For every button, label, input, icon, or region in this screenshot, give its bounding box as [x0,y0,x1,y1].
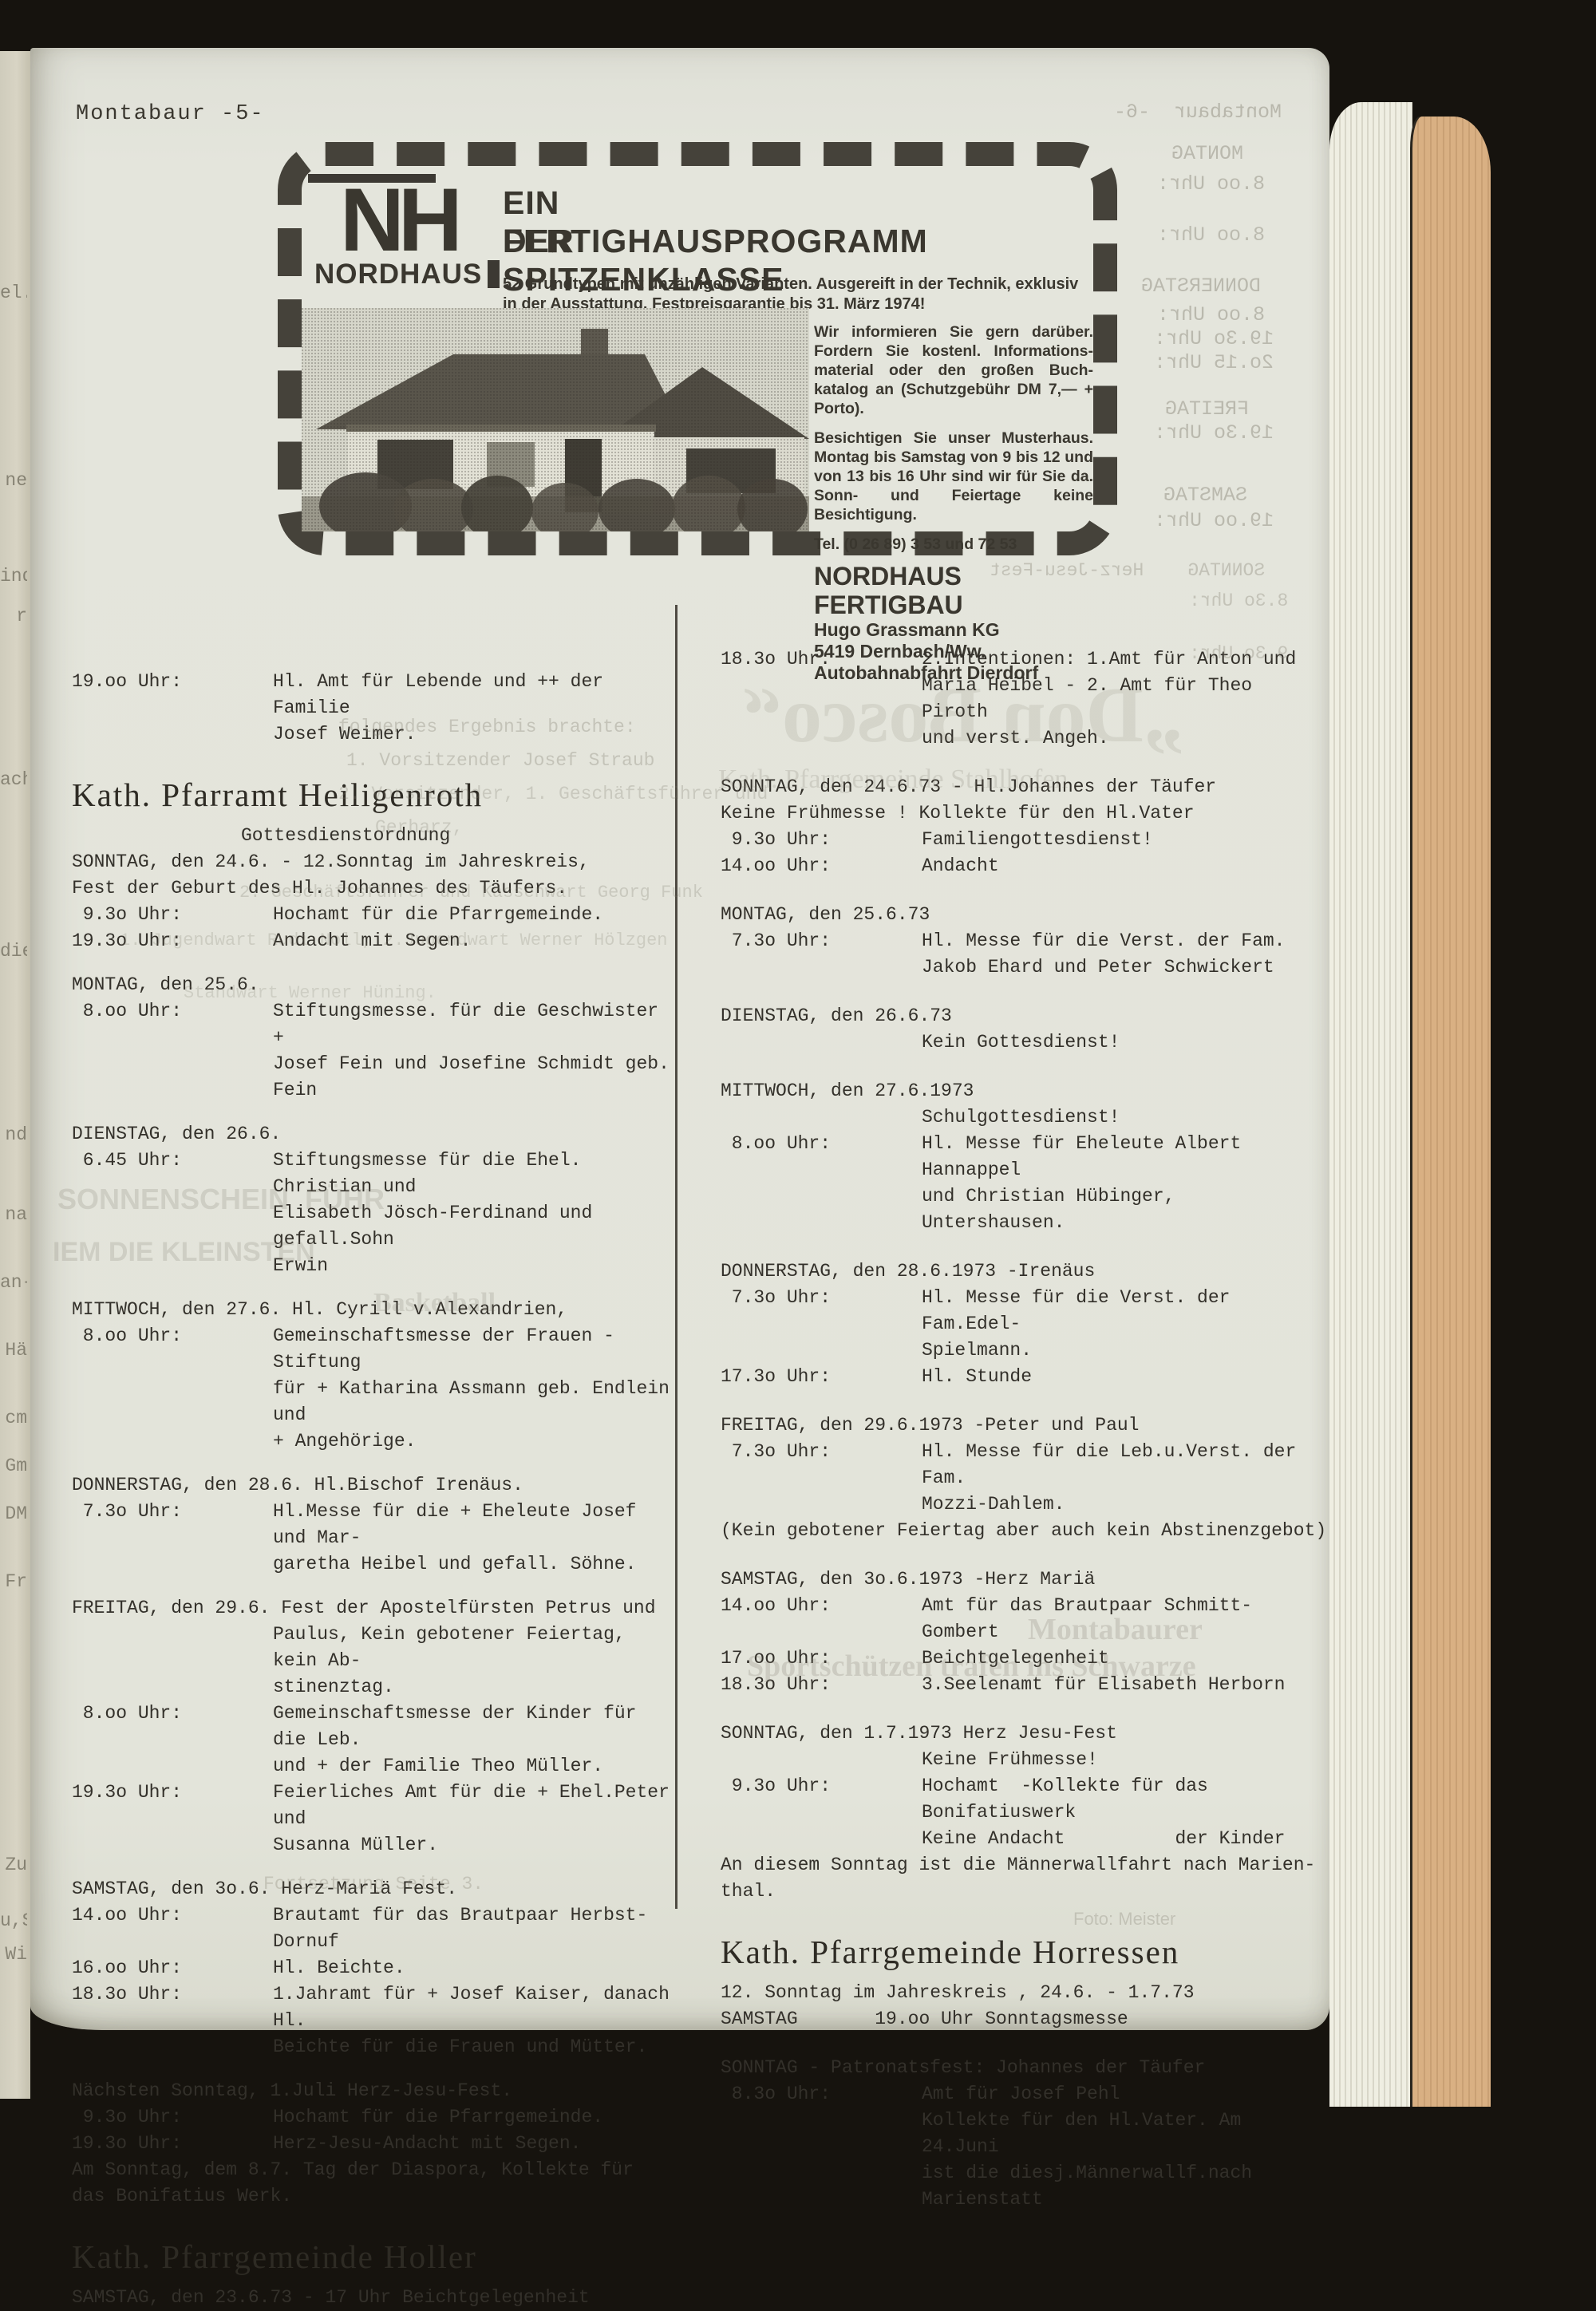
time-cell [72,1753,273,1780]
schedule-day-line: An diesem Sonntag ist die Männerwallfahr… [721,1852,1327,1878]
edge-text-fragment: na [0,1204,27,1225]
schedule-time-row: 7.3o Uhr:Hl. Messe für die Verst. der Fa… [721,1285,1327,1337]
schedule-time-row: 9.3o Uhr:Hochamt für die Pfarrgemeinde. [72,2104,680,2131]
time-cell: 19.3o Uhr: [72,2131,273,2157]
schedule-continuation-row: Kollekte für den Hl.Vater. Am 24.Juni [721,2108,1327,2160]
schedule-continuation-row: Kein Gottesdienst! [721,1029,1327,1056]
bleedthrough-text: 2o.15 Uhr: [1154,351,1274,374]
time-cell [721,1747,922,1773]
text-cell: Hochamt für die Pfarrgemeinde. [273,2104,680,2131]
time-cell: 16.oo Uhr: [72,1955,273,1981]
schedule-continuation-row: und Christian Hübinger, Untershausen. [721,1183,1327,1236]
text-cell: Erwin [273,1253,680,1279]
bleedthrough-text: 9.3o Uhr: [1189,643,1288,664]
spacer [721,1698,1327,1720]
spacer [721,879,1327,902]
ad-info-paragraph-1: Wir informieren Sie gern darüber. Forder… [814,322,1093,418]
bleedthrough-text: 19.oo Uhr: [1154,509,1274,532]
text-cell: Hl. Messe für Eheleute Albert Hannappel [922,1131,1327,1183]
bleedthrough-text: IEM DIE KLEINSTEN [53,1237,315,1268]
edge-text-fragment: Fr [0,1571,27,1592]
text-cell: Susanna Müller. [273,1832,680,1859]
bleedthrough-text: Standwart Werner Hüning. [184,983,437,1003]
bleedthrough-text: Gerharz, [375,817,463,838]
text-cell: Spielmann. [922,1337,1327,1364]
edge-text-fragment: el. [0,282,27,303]
time-cell: 8.3o Uhr: [721,2081,922,2108]
schedule-day-line: DONNERSTAG, den 28.6. Hl.Bischof Irenäus… [72,1472,680,1499]
ad-info-block: Wir informieren Sie gern darüber. Forder… [814,322,1093,684]
schedule-day-line: 12. Sonntag im Jahreskreis , 24.6. - 1.7… [721,1980,1327,2006]
schedule-day-line: DIENSTAG, den 26.6. [72,1121,680,1148]
edge-text-fragment: Gm [0,1456,27,1476]
adjacent-page-edge: el.neinderachdiendnaan-HäcmGmDMFrZuu,Sal… [0,51,30,2099]
time-cell: 9.3o Uhr: [72,2104,273,2131]
schedule-time-row: 14.oo Uhr:Brautamt für das Brautpaar Her… [72,1902,680,1955]
bleedthrough-text: DONNERSTAG [1141,275,1261,298]
text-cell: Feierliches Amt für die + Ehel.Peter und [273,1780,680,1832]
text-cell: + Angehörige. [273,1428,680,1455]
bleedthrough-text: 2. Geschäftsführer und Kassenwart Georg … [239,883,703,903]
schedule-time-row: 17.3o Uhr:Hl. Stunde [721,1364,1327,1390]
text-cell: Josef Fein und Josefine Schmidt geb. Fei… [273,1051,680,1104]
time-cell: 7.3o Uhr: [721,1439,922,1491]
bleedthrough-text: 1. Vorsitzender Josef Straub [346,750,654,771]
edge-text-fragment: ne [0,470,27,491]
schedule-continuation-row: Susanna Müller. [72,1832,680,1859]
schedule-day-line: FREITAG, den 29.6.1973 -Peter und Paul [721,1412,1327,1439]
time-cell: 18.3o Uhr: [72,1981,273,2034]
edge-text-fragment: u,Sal [0,1910,27,1931]
schedule-time-row: 19.oo Uhr:Hl. Amt für Lebende und ++ der… [72,669,680,721]
schedule-continuation-row: Keine Andacht der Kinder [721,1826,1327,1852]
time-cell [72,721,273,748]
edge-text-fragment: inde [0,566,27,587]
time-cell: 19.3o Uhr: [72,1780,273,1832]
scanned-bulletin-page: { "page_header": "Montabaur -5-", "color… [0,0,1596,2126]
text-cell: Brautamt für das Brautpaar Herbst-Dornuf [273,1902,680,1955]
edge-text-fragment: nd [0,1124,27,1145]
bleedthrough-text: 8.oo Uhr: [1157,223,1265,247]
bleedthrough-text: SAMSTAG [1163,484,1247,507]
right-schedule-column: 18.3o Uhr:2.Intentionen: 1.Amt für Anton… [721,646,1327,2213]
schedule-time-row: 8.3o Uhr:Amt für Josef Pehl [721,2081,1327,2108]
text-cell: Andacht [922,853,1327,879]
text-cell: Beichte für die Frauen und Mütter. [273,2034,680,2060]
time-cell [721,1337,922,1364]
spacer [72,2060,680,2078]
schedule-time-row: 16.oo Uhr:Hl. Beichte. [72,1955,680,1981]
ad-info-paragraph-2: Besichtigen Sie unser Musterhaus. Montag… [814,429,1093,524]
schedule-time-row: 7.3o Uhr:Hl.Messe für die + Eheleute Jos… [72,1499,680,1551]
schedule-day-line: SONNTAG, den 24.6. - 12.Sonntag im Jahre… [72,849,680,875]
spacer [72,1578,680,1595]
text-cell: Kein Gottesdienst! [922,1029,1327,1056]
bleedthrough-text: 8.3o Uhr: [1189,591,1288,611]
text-cell: stinenztag. [273,1674,680,1701]
schedule-continuation-row: garetha Heibel und gefall. Söhne. [72,1551,680,1578]
time-cell: 7.3o Uhr: [72,1499,273,1551]
bleedthrough-text: 8.oo Uhr: [1157,303,1265,326]
time-cell [72,2034,273,2060]
edge-text-fragment: ach [0,769,27,790]
schedule-day-line: SONNTAG, den 1.7.1973 Herz Jesu-Fest [721,1720,1327,1747]
bleedthrough-text: SONNENSCHEIN FÜHR [57,1183,385,1216]
edge-text-fragment: Wi [0,1944,27,1965]
bleedthrough-text: MONTAG [1171,142,1243,165]
schedule-day-line: das Bonifatius Werk. [72,2183,680,2210]
text-cell: Gemeinschaftsmesse der Kinder für die Le… [273,1701,680,1753]
time-cell [72,1428,273,1455]
schedule-day-line: SAMSTAG 19.oo Uhr Sonntagsmesse [721,2006,1327,2032]
schedule-time-row: 7.3o Uhr:Hl. Messe für die Verst. der Fa… [721,928,1327,954]
time-cell: 8.oo Uhr: [721,1131,922,1183]
text-cell: Hl. Stunde [922,1364,1327,1390]
schedule-day-line: MITTWOCH, den 27.6.1973 [721,1078,1327,1104]
text-cell: und Christian Hübinger, Untershausen. [922,1183,1327,1236]
text-cell: Schulgottesdienst! [922,1104,1327,1131]
bleedthrough-text: 1. Jugendwart Rudi Noll, 2.Jugendwart We… [120,930,668,950]
schedule-day-line: FREITAG, den 29.6. Fest der Apostelfürst… [72,1595,680,1622]
spacer [72,1455,680,1472]
text-cell: ist die diesj.Männerwallf.nach Mariensta… [922,2160,1327,2213]
time-cell [721,1491,922,1518]
text-cell: Hochamt für die Pfarrgemeinde. [273,902,680,928]
schedule-time-row: 19.3o Uhr:Feierliches Amt für die + Ehel… [72,1780,680,1832]
time-cell: 8.oo Uhr: [72,998,273,1051]
schedule-time-row: 8.oo Uhr:Stiftungsmesse. für die Geschwi… [72,998,680,1051]
bleedthrough-text: Montabaur -6- [1114,101,1282,124]
text-cell: 1.Jahramt für + Josef Kaiser, danach Hl. [273,1981,680,2034]
schedule-time-row: 19.3o Uhr:Herz-Jesu-Andacht mit Segen. [72,2131,680,2157]
schedule-time-row: 9.3o Uhr:Hochamt für die Pfarrgemeinde. [72,902,680,928]
text-cell: Paulus, Kein gebotener Feiertag, kein Ab… [273,1622,680,1674]
text-cell: Keine Frühmesse! [922,1747,1327,1773]
bleedthrough-text: 2. Vorsitzender, 1. Geschäftsführer und [338,784,768,804]
text-cell: für + Katharina Assmann geb. Endlein und [273,1376,680,1428]
schedule-continuation-row: Keine Frühmesse! [721,1747,1327,1773]
text-cell: Kollekte für den Hl.Vater. Am 24.Juni [922,2108,1327,2160]
time-cell: 9.3o Uhr: [72,902,273,928]
time-cell: 7.3o Uhr: [721,1285,922,1337]
time-cell [721,1183,922,1236]
time-cell: 17.3o Uhr: [721,1364,922,1390]
bleedthrough-text: SONNTAG Herz-Jesu-Fest [990,560,1265,581]
time-cell [721,1029,922,1056]
parish-heading: Kath. Pfarrgemeinde Holler [72,2238,680,2275]
spacer [72,1104,680,1121]
time-cell [72,1551,273,1578]
schedule-time-row: 8.oo Uhr:Hl. Messe für Eheleute Albert H… [721,1131,1327,1183]
time-cell [72,1832,273,1859]
text-cell: Herz-Jesu-Andacht mit Segen. [273,2131,680,2157]
text-cell: Familiengottesdienst! [922,827,1327,853]
edge-text-fragment: Zu [0,1855,27,1875]
time-cell: 9.3o Uhr: [721,827,922,853]
time-cell: 14.oo Uhr: [72,1902,273,1955]
bleedthrough-text: 19.3o Uhr: [1154,327,1274,350]
bleedthrough-text: Sportschützen trafen ins Schwarze [747,1649,1196,1684]
schedule-time-row: 8.oo Uhr:Gemeinschaftsmesse der Kinder f… [72,1701,680,1753]
text-cell: Stiftungsmesse. für die Geschwister + [273,998,680,1051]
text-cell: Amt für Josef Pehl [922,2081,1327,2108]
schedule-time-row: 14.oo Uhr:Andacht [721,853,1327,879]
spacer [721,2032,1327,2055]
time-cell [72,1622,273,1674]
bleedthrough-text: „Don Bosco“ [742,669,1183,760]
text-cell: und + der Familie Theo Müller. [273,1753,680,1780]
schedule-day-line: SAMSTAG, den 3o.6.1973 -Herz Mariä [721,1566,1327,1593]
time-cell: 14.oo Uhr: [721,1593,922,1645]
text-cell: Hl. Messe für die Verst. der Fam. [922,928,1327,954]
schedule-continuation-row: Schulgottesdienst! [721,1104,1327,1131]
schedule-continuation-row: stinenztag. [72,1674,680,1701]
schedule-day-line: MONTAG, den 25.6.73 [721,902,1327,928]
page-header: Montabaur -5- [76,102,265,126]
text-cell: Gemeinschaftsmesse der Frauen - Stiftung [273,1323,680,1376]
schedule-time-row: 7.3o Uhr:Hl. Messe für die Leb.u.Verst. … [721,1439,1327,1491]
schedule-continuation-row: ist die diesj.Männerwallf.nach Mariensta… [721,2160,1327,2213]
time-cell: 9.3o Uhr: [721,1773,922,1826]
bleedthrough-text: 8.oo Uhr: [1157,172,1265,196]
schedule-day-line: (Kein gebotener Feiertag aber auch kein … [721,1518,1327,1544]
spacer [721,1056,1327,1078]
edge-text-fragment: an- [0,1272,27,1293]
schedule-day-line: Keine Frühmesse ! Kollekte für den Hl.Va… [721,800,1327,827]
text-cell: Mozzi-Dahlem. [922,1491,1327,1518]
ad-company-line2: Hugo Grassmann KG [814,619,1093,641]
text-cell: Hochamt -Kollekte für das Bonifatiuswerk [922,1773,1327,1826]
schedule-time-row: 14.oo Uhr:Amt für das Brautpaar Schmitt-… [721,1593,1327,1645]
schedule-continuation-row: Jakob Ehard und Peter Schwickert [721,954,1327,981]
logo-nh-letters: NH [340,179,456,262]
schedule-continuation-row: Mozzi-Dahlem. [721,1491,1327,1518]
edge-text-fragment: DM [0,1503,27,1524]
schedule-day-line: Nächsten Sonntag, 1.Juli Herz-Jesu-Fest. [72,2078,680,2104]
time-cell: 8.oo Uhr: [72,1701,273,1753]
schedule-continuation-row: Paulus, Kein gebotener Feiertag, kein Ab… [72,1622,680,1674]
logo-wordmark: NORDHAUS [314,260,500,288]
bleedthrough-text: Montabaurer [1028,1612,1203,1647]
bleedthrough-text: Fortsetzung Seite 3. [263,1874,484,1894]
time-cell [721,1826,922,1852]
schedule-continuation-row: für + Katharina Assmann geb. Endlein und [72,1376,680,1428]
schedule-continuation-row: Josef Fein und Josefine Schmidt geb. Fei… [72,1051,680,1104]
time-cell [721,954,922,981]
schedule-day-line: thal. [721,1878,1327,1905]
bleedthrough-text: Foto: Meister [1073,1909,1175,1930]
text-cell: Hl. Beichte. [273,1955,680,1981]
time-cell [721,1104,922,1131]
edge-text-fragment: cm [0,1408,27,1428]
spacer [721,981,1327,1003]
schedule-day-line: DIENSTAG, den 26.6.73 [721,1003,1327,1029]
bleedthrough-text: 19.3o Uhr: [1154,421,1274,444]
spacer [721,1390,1327,1412]
schedule-continuation-row: Beichte für die Frauen und Mütter. [72,2034,680,2060]
schedule-day-line: DONNERSTAG, den 28.6.1973 -Irenäus [721,1258,1327,1285]
schedule-day-line: SAMSTAG, den 23.6.73 - 17 Uhr Beichtgele… [72,2285,680,2311]
schedule-time-row: 9.3o Uhr:Familiengottesdienst! [721,827,1327,853]
book-page-stack-white [1329,102,1412,2107]
schedule-continuation-row: und + der Familie Theo Müller. [72,1753,680,1780]
spacer [721,1905,1327,1916]
schedule-time-row: 8.oo Uhr:Gemeinschaftsmesse der Frauen -… [72,1323,680,1376]
time-cell: 14.oo Uhr: [721,853,922,879]
schedule-continuation-row: + Angehörige. [72,1428,680,1455]
left-schedule-column: 19.oo Uhr:Hl. Amt für Lebende und ++ der… [72,669,680,2311]
time-cell [72,1051,273,1104]
schedule-time-row: 18.3o Uhr:1.Jahramt für + Josef Kaiser, … [72,1981,680,2034]
text-cell: Hl. Messe für die Leb.u.Verst. der Fam. [922,1439,1327,1491]
schedule-continuation-row: Spielmann. [721,1337,1327,1364]
text-cell: Hl. Messe für die Verst. der Fam.Edel- [922,1285,1327,1337]
text-cell: Hl. Amt für Lebende und ++ der Familie [273,669,680,721]
time-cell: 8.oo Uhr: [72,1323,273,1376]
time-cell: 7.3o Uhr: [721,928,922,954]
time-cell: 19.oo Uhr: [72,669,273,721]
bleedthrough-text: Kath. Pfarrgemeinde Stahlhofen [718,764,1068,795]
book-page-stack-tan [1412,117,1491,2107]
parish-heading: Kath. Pfarrgemeinde Horressen [721,1934,1327,1970]
bleedthrough-text: folgendes Ergebnis brachte: [338,717,636,737]
time-cell [721,2108,922,2160]
schedule-time-row: 9.3o Uhr:Hochamt -Kollekte für das Bonif… [721,1773,1327,1826]
text-cell: Hl.Messe für die + Eheleute Josef und Ma… [273,1499,680,1551]
text-cell: Jakob Ehard und Peter Schwickert [922,954,1327,981]
spacer [72,954,680,972]
nordhaus-advertisement: NH NORDHAUS EIN FERTIGHAUSPROGRAMM DER S… [278,142,1117,555]
time-cell [72,1376,273,1428]
musterhaus-photo [302,308,809,531]
time-cell [721,2160,922,2213]
edge-text-fragment: Hä [0,1340,27,1361]
text-cell: garetha Heibel und gefall. Söhne. [273,1551,680,1578]
spacer [72,2210,680,2221]
text-cell: Keine Andacht der Kinder [922,1826,1327,1852]
schedule-day-line: Am Sonntag, dem 8.7. Tag der Diaspora, K… [72,2157,680,2183]
spacer [721,1544,1327,1566]
bleedthrough-text: FREITAG [1165,397,1249,421]
spacer [721,1236,1327,1258]
bleedthrough-text: Basketball [373,1288,496,1318]
ad-phone: Tel. (0 26 89) 3 53 und 72 53 [814,535,1093,554]
schedule-day-line: SONNTAG - Patronatsfest: Johannes der Tä… [721,2055,1327,2081]
edge-text-fragment: die [0,941,27,962]
edge-text-fragment: r [0,606,27,626]
time-cell [72,1674,273,1701]
